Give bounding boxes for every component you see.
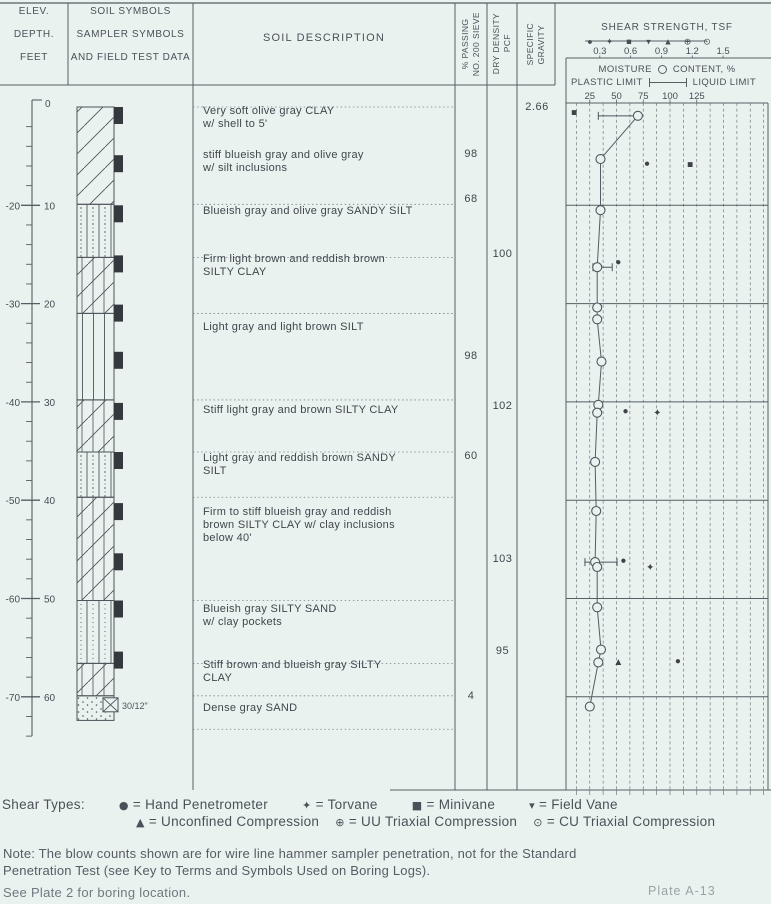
dry-density-value: 95: [488, 645, 517, 657]
dry-density-value: 103: [488, 553, 517, 565]
shear-types-legend-row2: ▲ = Unconfined Compression⊕ = UU Triaxia…: [136, 814, 771, 829]
legend-item: ▲ = Unconfined Compression: [136, 814, 319, 829]
legend-title: Shear Types:: [2, 797, 85, 812]
legend-symbol-icon: ▲: [136, 816, 145, 829]
legend-item: ✦ = Torvane: [302, 797, 378, 812]
legend-item: ▾ = Field Vane: [529, 797, 618, 812]
soil-description: Light gray and reddish brown SANDY SILT: [203, 452, 451, 478]
soil-description: Firm light brown and reddish brown SILTY…: [203, 253, 451, 279]
legend-item: ⊕ = UU Triaxial Compression: [335, 814, 517, 829]
pct-passing-value: 98: [456, 350, 486, 362]
soil-description: Blueish gray SILTY SAND w/ clay pockets: [203, 603, 451, 629]
legend-symbol-icon: ⊕: [335, 816, 345, 829]
shear-types-legend-row1: Shear Types: ● = Hand Penetrometer✦ = To…: [2, 797, 770, 812]
dry-density-value: 102: [488, 400, 517, 412]
legend-symbol-icon: ▾: [529, 799, 535, 812]
soil-description: Firm to stiff blueish gray and reddish b…: [203, 506, 451, 545]
soil-description: Blueish gray and olive gray SANDY SILT: [203, 205, 451, 218]
blow-count-note: Note: The blow counts shown are for wire…: [3, 845, 765, 879]
specific-gravity-value: 2.66: [519, 101, 555, 113]
soil-description: Dense gray SAND: [203, 702, 451, 715]
legend-symbol-icon: ⊙: [533, 816, 543, 829]
legend-symbol-icon: ■: [412, 799, 423, 812]
pct-passing-value: 98: [456, 148, 486, 160]
pct-passing-value: 60: [456, 450, 486, 462]
soil-description: Very soft olive gray CLAY w/ shell to 5': [203, 105, 451, 131]
legend-symbol-icon: ✦: [302, 799, 312, 812]
plate-number: Plate A-13: [648, 884, 716, 898]
legend-item: ⊙ = CU Triaxial Compression: [533, 814, 715, 829]
pct-passing-value: 68: [456, 193, 486, 205]
soil-description: Stiff brown and blueish gray SILTY CLAY: [203, 659, 451, 685]
log-text-layer: Very soft olive gray CLAY w/ shell to 5'…: [0, 0, 771, 904]
soil-description: Light gray and light brown SILT: [203, 321, 451, 334]
legend-item: ● = Hand Penetrometer: [119, 797, 268, 812]
boring-log-sheet: 010-2020-3030-4040-5050-6060-7030/12"●✦■…: [0, 0, 771, 904]
dry-density-value: 100: [488, 248, 517, 260]
legend-item: ■ = Minivane: [412, 797, 495, 812]
soil-description: Stiff light gray and brown SILTY CLAY: [203, 404, 451, 417]
pct-passing-value: 4: [456, 690, 486, 702]
see-plate-note: See Plate 2 for boring location.: [3, 885, 190, 900]
soil-description: stiff blueish gray and olive gray w/ sil…: [203, 149, 451, 175]
legend-symbol-icon: ●: [119, 799, 129, 812]
